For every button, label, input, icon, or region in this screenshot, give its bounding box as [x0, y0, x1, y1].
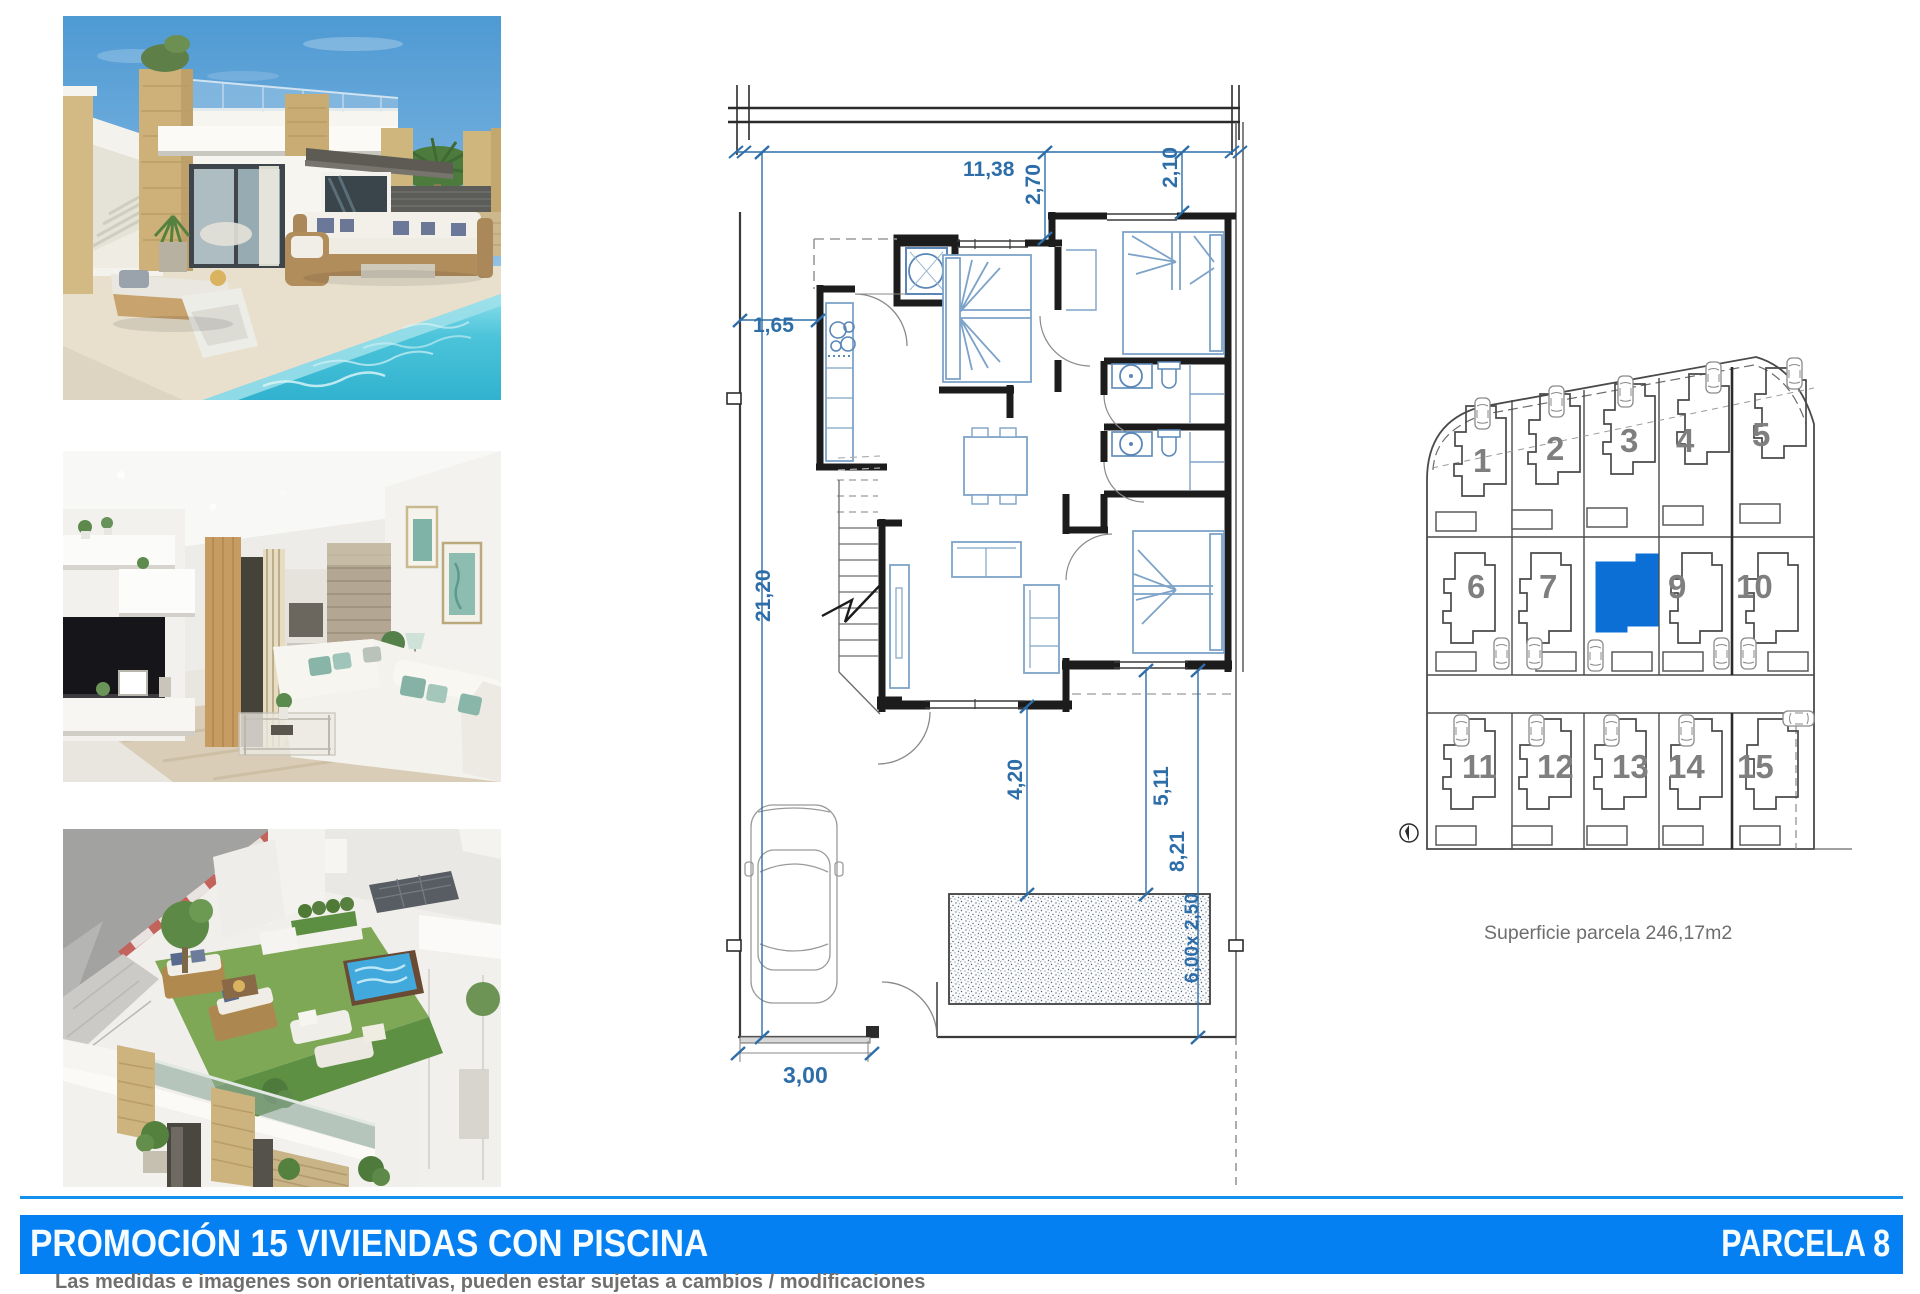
svg-text:6: 6	[1467, 568, 1485, 605]
svg-text:11,38: 11,38	[963, 158, 1015, 181]
svg-text:5,11: 5,11	[1150, 766, 1173, 806]
svg-text:13: 13	[1612, 748, 1649, 785]
svg-text:10: 10	[1736, 568, 1773, 605]
svg-text:1,65: 1,65	[753, 314, 794, 337]
svg-text:2,70: 2,70	[1022, 164, 1045, 205]
svg-text:11: 11	[1462, 748, 1497, 785]
svg-text:7: 7	[1539, 568, 1557, 605]
svg-text:4: 4	[1676, 422, 1695, 459]
svg-text:5: 5	[1752, 416, 1770, 453]
svg-text:3,00: 3,00	[783, 1062, 828, 1088]
svg-text:15: 15	[1737, 748, 1774, 785]
svg-text:6,00x 2,50: 6,00x 2,50	[1182, 893, 1203, 983]
svg-text:2: 2	[1546, 430, 1564, 467]
svg-text:4,20: 4,20	[1004, 759, 1027, 800]
svg-text:9: 9	[1668, 568, 1686, 605]
svg-text:1: 1	[1473, 442, 1491, 479]
svg-text:2,10: 2,10	[1159, 147, 1182, 188]
svg-text:8,21: 8,21	[1166, 831, 1189, 872]
svg-text:14: 14	[1668, 748, 1705, 785]
svg-text:3: 3	[1620, 422, 1638, 459]
svg-text:12: 12	[1537, 748, 1574, 785]
svg-text:21,20: 21,20	[752, 569, 775, 622]
